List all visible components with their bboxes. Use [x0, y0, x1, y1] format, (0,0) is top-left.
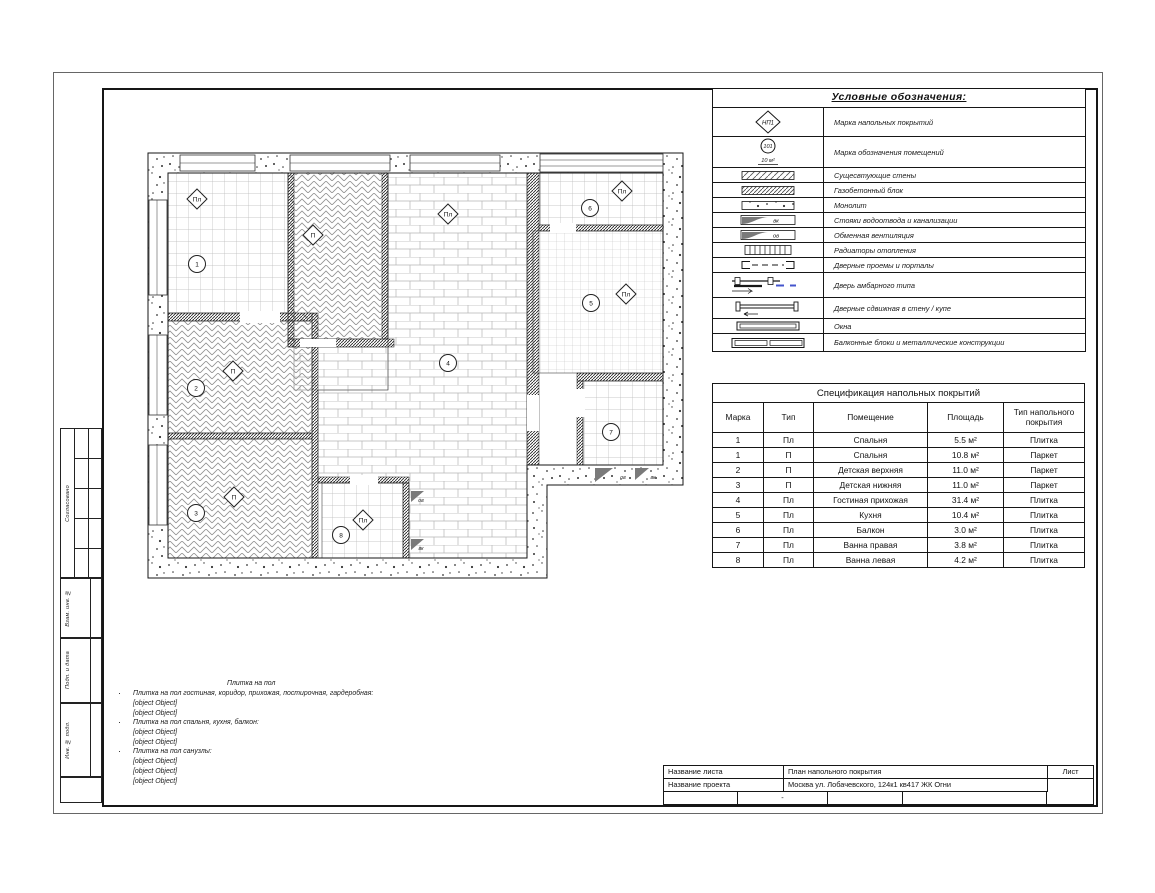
note-line: [object Object] [133, 738, 552, 748]
spec-cell-tip: Пл [764, 493, 814, 508]
legend-label: Газобетонный блок [824, 183, 1085, 197]
svg-text:ов: ов [773, 234, 779, 240]
titleblock-dash-cell: - [738, 792, 828, 804]
svg-text:П: П [232, 494, 237, 501]
spec-cell-marka: 6 [713, 523, 764, 538]
project-name-value: Москва ул. Лобачевского, 124к1 кв417 ЖК … [784, 779, 1048, 792]
svg-text:3: 3 [194, 510, 198, 517]
spec-header-row: Марка Тип Помещение Площадь Тип напольно… [713, 403, 1085, 433]
spec-row: 1 П Спальня 10.8 м² Паркет [713, 448, 1085, 463]
svg-text:2: 2 [194, 385, 198, 392]
legend-label: Окна [824, 319, 1085, 333]
sliding-door-icon [713, 298, 824, 318]
svg-text:П: П [231, 368, 236, 375]
legend-label: Монолит [824, 198, 1085, 212]
legend-label: Сущесвтующие стены [824, 168, 1085, 182]
spec-cell-area: 11.0 м² [928, 478, 1004, 493]
spec-table: Спецификация напольных покрытий Марка Ти… [712, 383, 1084, 568]
legend-label: Дверные сдвижная в стену / купе [824, 298, 1085, 318]
stack-label: ов [620, 475, 626, 481]
spec-row: 6 Пл Балкон 3.0 м² Плитка [713, 523, 1085, 538]
spec-cell-area: 4.2 м² [928, 553, 1004, 568]
spec-cell-area: 31.4 м² [928, 493, 1004, 508]
note-item: Плитка на пол санузлы: [object Object][o… [112, 747, 552, 786]
spec-cell-area: 5.5 м² [928, 433, 1004, 448]
water-stack-icon: вк [713, 213, 824, 227]
note-line: [object Object] [133, 699, 552, 709]
spec-cell-room: Кухня [814, 508, 928, 523]
sheet-name-label: Название листа [664, 766, 784, 779]
project-name-label: Название проекта [664, 779, 784, 792]
stamp-section-podp: Подп. и дата [60, 638, 102, 703]
room-number-marker: 1 [189, 256, 206, 273]
svg-text:7: 7 [609, 429, 613, 436]
svg-text:Пл: Пл [359, 517, 368, 524]
legend-label: Стояки водоотвода и канализации [824, 213, 1085, 227]
spec-cell-marka: 7 [713, 538, 764, 553]
room-1-bedroom-tile [168, 173, 288, 313]
room-number-marker: 3 [188, 505, 205, 522]
spec-cell-area: 3.8 м² [928, 538, 1004, 553]
note-line: [object Object] [133, 767, 552, 777]
stamp-section-empty [60, 777, 102, 803]
spec-cell-tip: Пл [764, 553, 814, 568]
stamp-section-inv: Инв. № подл. [60, 703, 102, 777]
legend-label: Дверь амбарного типа [824, 273, 1085, 297]
spec-cell-tip: Пл [764, 433, 814, 448]
spec-cell-area: 11.0 м² [928, 463, 1004, 478]
note-line: [object Object] [133, 728, 552, 738]
note-text: Плитка на пол спальня, кухня, балкон: [133, 718, 552, 728]
spec-cell-cover: Плитка [1004, 508, 1085, 523]
monolith-icon [713, 198, 824, 212]
spec-cell-tip: П [764, 448, 814, 463]
spec-row: 3 П Детская нижняя 11.0 м² Паркет [713, 478, 1085, 493]
spec-cell-cover: Плитка [1004, 553, 1085, 568]
vent-icon: ов [713, 228, 824, 242]
door-opening-icon [713, 258, 824, 272]
spec-title: Спецификация напольных покрытий [713, 384, 1085, 403]
spec-cell-cover: Паркет [1004, 463, 1085, 478]
legend-title: Условные обозначения: [713, 89, 1085, 108]
spec-cell-tip: Пл [764, 508, 814, 523]
svg-text:8: 8 [339, 532, 343, 539]
spec-row: 4 Пл Гостиная прихожая 31.4 м² Плитка [713, 493, 1085, 508]
spec-cell-marka: 1 [713, 448, 764, 463]
spec-cell-cover: Плитка [1004, 523, 1085, 538]
svg-text:1: 1 [195, 261, 199, 268]
spec-cell-room: Ванна правая [814, 538, 928, 553]
room-mark-icon: 101 10 м² [713, 137, 824, 167]
stamp-column: Согласовано Взам. инв. № Подп. и дата Ин… [60, 428, 102, 803]
spec-cell-room: Спальня [814, 433, 928, 448]
room-number-marker: 5 [583, 295, 600, 312]
spec-cell-cover: Плитка [1004, 433, 1085, 448]
spec-row: 5 Пл Кухня 10.4 м² Плитка [713, 508, 1085, 523]
spec-header: Помещение [814, 403, 928, 433]
svg-text:Пл: Пл [444, 211, 453, 218]
svg-text:10 м²: 10 м² [761, 158, 776, 164]
spec-header: Площадь [928, 403, 1004, 433]
spec-row: 2 П Детская верхняя 11.0 м² Паркет [713, 463, 1085, 478]
notes-title: Плитка на пол [227, 679, 552, 689]
legend-label: Дверные проемы и порталы [824, 258, 1085, 272]
spec-row: 1 Пл Спальня 5.5 м² Плитка [713, 433, 1085, 448]
legend-label: Балконные блоки и металлические конструк… [824, 334, 1085, 351]
stamp-section-approved: Согласовано [60, 428, 102, 578]
room-number-marker: 4 [440, 355, 457, 372]
spec-header: Тип напольного покрытия [1004, 403, 1085, 433]
svg-text:вк: вк [773, 219, 779, 225]
spec-cell-marka: 3 [713, 478, 764, 493]
list-label: Лист [1048, 766, 1093, 779]
spec-cell-room: Детская верхняя [814, 463, 928, 478]
spec-cell-cover: Паркет [1004, 448, 1085, 463]
room-7-bath-right [583, 381, 663, 465]
stack-label: вк [419, 546, 425, 552]
svg-text:П: П [311, 232, 316, 239]
note-item: Плитка на пол спальня, кухня, балкон: [o… [112, 718, 552, 747]
spec-cell-room: Балкон [814, 523, 928, 538]
floor-plan-svg: ов вк ов вк Пл 1 П Пл 4 Пл 6 [140, 145, 685, 590]
titleblock-cell [903, 792, 1047, 804]
room-6-balcony [540, 173, 663, 225]
note-text: Плитка на пол санузлы: [133, 747, 552, 757]
spec-cell-cover: Паркет [1004, 478, 1085, 493]
spec-cell-area: 10.8 м² [928, 448, 1004, 463]
existing-walls-icon [713, 168, 824, 182]
spec-cell-marka: 2 [713, 463, 764, 478]
svg-text:НП1: НП1 [762, 120, 774, 126]
legend-label: Марка напольных покрытий [824, 108, 1085, 136]
floor-plan: ов вк ов вк Пл 1 П Пл 4 Пл 6 [140, 145, 685, 590]
spec-cell-room: Гостиная прихожая [814, 493, 928, 508]
legend-table: Условные обозначения: НП1 Марка напольны… [712, 88, 1086, 352]
stamp-label: Согласовано [65, 485, 71, 522]
note-text: Плитка на пол гостиная, коридор, прихожа… [133, 689, 552, 699]
spec-cell-room: Ванна левая [814, 553, 928, 568]
spec-cell-marka: 5 [713, 508, 764, 523]
room-number-marker: 8 [333, 527, 350, 544]
svg-text:Пл: Пл [622, 291, 631, 298]
svg-text:5: 5 [589, 300, 593, 307]
spec-header: Марка [713, 403, 764, 433]
stamp-section-vzam: Взам. инв. № [60, 578, 102, 638]
svg-text:6: 6 [588, 205, 592, 212]
note-item: Плитка на пол гостиная, коридор, прихожа… [112, 689, 552, 718]
note-line: [object Object] [133, 709, 552, 719]
titleblock-cell [664, 792, 738, 804]
radiator-icon [713, 243, 824, 257]
spec-cell-marka: 4 [713, 493, 764, 508]
spec-cell-marka: 8 [713, 553, 764, 568]
spec-cell-tip: Пл [764, 538, 814, 553]
note-line: [object Object] [133, 757, 552, 767]
spec-header: Тип [764, 403, 814, 433]
legend-label: Марка обозначения помещений [824, 137, 1085, 167]
stack-label: ов [418, 498, 424, 504]
stamp-label: Взам. инв. № [65, 589, 71, 627]
svg-text:4: 4 [446, 360, 450, 367]
spec-cell-cover: Плитка [1004, 493, 1085, 508]
spec-row: 7 Пл Ванна правая 3.8 м² Плитка [713, 538, 1085, 553]
gas-block-icon [713, 183, 824, 197]
spec-cell-room: Спальня [814, 448, 928, 463]
room-number-marker: 6 [582, 200, 599, 217]
titleblock-cell [1047, 792, 1092, 804]
sheet-name-value: План напольного покрытия [784, 766, 1048, 779]
titleblock-cell [828, 792, 903, 804]
note-line: [object Object] [133, 777, 552, 787]
stamp-label: Подп. и дата [65, 651, 71, 689]
svg-text:Пл: Пл [193, 196, 202, 203]
notes-block: Плитка на пол Плитка на пол гостиная, ко… [112, 679, 552, 786]
svg-text:101: 101 [763, 144, 772, 150]
spec-cell-marka: 1 [713, 433, 764, 448]
spec-cell-area: 10.4 м² [928, 508, 1004, 523]
svg-text:Пл: Пл [618, 188, 627, 195]
stamp-label: Инв. № подл. [65, 721, 71, 759]
room-number-marker: 7 [603, 424, 620, 441]
spec-row: 8 Пл Ванна левая 4.2 м² Плитка [713, 553, 1085, 568]
list-number-cell [1048, 779, 1093, 792]
barn-door-icon [713, 273, 824, 297]
legend-label: Обменная вентиляция [824, 228, 1085, 242]
spec-cell-tip: П [764, 478, 814, 493]
spec-cell-room: Детская нижняя [814, 478, 928, 493]
balcony-block-icon [713, 334, 824, 351]
stamp-grid [74, 429, 101, 577]
window-icon [713, 319, 824, 333]
floor-mark-icon: НП1 [713, 108, 824, 136]
room-number-marker: 2 [188, 380, 205, 397]
spec-cell-tip: П [764, 463, 814, 478]
drawing-sheet: Согласовано Взам. инв. № Подп. и дата Ин… [0, 0, 1155, 893]
spec-cell-area: 3.0 м² [928, 523, 1004, 538]
legend-label: Радиаторы отопления [824, 243, 1085, 257]
stack-label: вк [651, 475, 657, 481]
title-block: Название листа План напольного покрытия … [663, 765, 1094, 805]
spec-cell-cover: Плитка [1004, 538, 1085, 553]
spec-cell-tip: Пл [764, 523, 814, 538]
